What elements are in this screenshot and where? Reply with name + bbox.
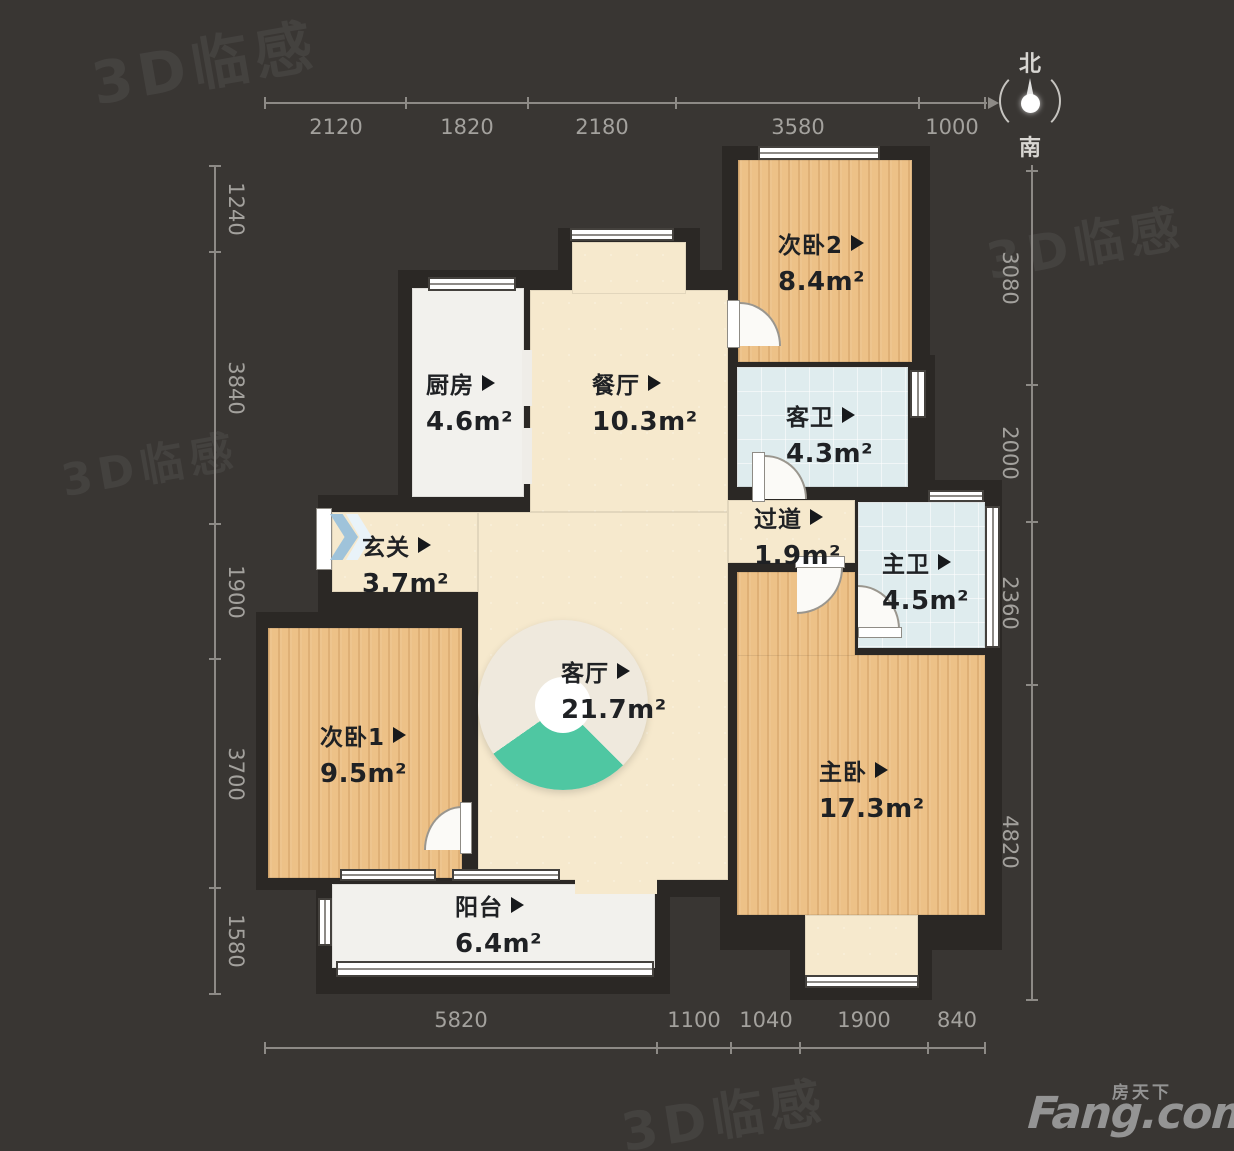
room-label-dining[interactable]: 餐厅 10.3m²: [592, 366, 698, 437]
room-label-corridor[interactable]: 过道 1.9m²: [754, 500, 841, 571]
dim-value: 3700: [224, 747, 248, 800]
watermark-text: 3D临感: [615, 1059, 832, 1151]
room-arrow-icon: [617, 663, 630, 679]
room-area: 6.4m²: [455, 929, 542, 959]
dim-value: 2360: [998, 576, 1022, 629]
floor-master-bay: [805, 915, 918, 977]
room-arrow-icon: [393, 727, 406, 743]
window-balcony-side: [318, 898, 332, 946]
dim-value: 1900: [837, 1008, 890, 1032]
room-name: 客卫: [786, 398, 834, 432]
window-guest-bath: [910, 370, 926, 418]
dim-tick: [918, 97, 920, 109]
dim-value: 2180: [575, 115, 628, 139]
door-bedroom1: [460, 802, 472, 854]
floor-dining-bay: [572, 242, 686, 294]
dim-value: 3840: [224, 361, 248, 414]
dim-tick: [984, 97, 986, 109]
window-dining-bay: [570, 228, 674, 241]
room-name: 次卧2: [778, 226, 843, 260]
room-area: 1.9m²: [754, 541, 841, 571]
room-name: 玄关: [362, 528, 410, 562]
dim-value: 4820: [998, 815, 1022, 868]
door-bedroom2: [727, 300, 740, 348]
floor-plan-canvas: 3D临感 3D临感 3D临感 3D临感: [0, 0, 1234, 1151]
room-arrow-icon: [938, 554, 951, 570]
room-area: 3.7m²: [362, 569, 449, 599]
fang-logo-en: Fang.com: [1026, 1088, 1234, 1139]
door-master-bath: [858, 627, 902, 638]
dim-value: 1040: [739, 1008, 792, 1032]
room-area: 17.3m²: [819, 794, 925, 824]
room-label-bedroom1[interactable]: 次卧1 9.5m²: [320, 718, 407, 789]
dim-arrow-icon: [988, 97, 999, 109]
dim-tick: [209, 523, 221, 525]
room-arrow-icon: [875, 762, 888, 778]
dim-tick: [730, 1042, 732, 1054]
compass-south-label: 南: [1015, 130, 1045, 162]
room-label-entry[interactable]: 玄关 3.7m²: [362, 528, 449, 599]
dim-tick: [527, 97, 529, 109]
room-name: 主卧: [819, 753, 867, 787]
window-balcony-front: [336, 961, 654, 977]
room-area: 4.3m²: [786, 439, 873, 469]
window-kitchen: [428, 277, 516, 291]
room-area: 4.5m²: [882, 586, 969, 616]
room-arrow-icon: [851, 235, 864, 251]
dim-value: 2120: [309, 115, 362, 139]
dim-tick: [984, 1042, 986, 1054]
room-label-kitchen[interactable]: 厨房 4.6m²: [426, 366, 513, 437]
window-master-bath-top: [928, 490, 984, 502]
dim-tick: [209, 165, 221, 167]
kitchen-opening: [522, 350, 532, 406]
dim-tick: [209, 251, 221, 253]
room-name: 餐厅: [592, 366, 640, 400]
dim-tick: [1026, 999, 1038, 1001]
window-living-balcony: [452, 869, 560, 881]
room-name: 厨房: [426, 366, 474, 400]
dim-tick: [1026, 384, 1038, 386]
room-arrow-icon: [482, 375, 495, 391]
room-name: 客厅: [561, 654, 609, 688]
compass-dot-icon: [1021, 94, 1040, 113]
room-name: 主卫: [882, 545, 930, 579]
kitchen-opening: [522, 428, 532, 484]
dim-value: 1240: [224, 182, 248, 235]
room-arrow-icon: [810, 509, 823, 525]
room-label-balcony[interactable]: 阳台 6.4m²: [455, 888, 542, 959]
room-area: 4.6m²: [426, 407, 513, 437]
room-arrow-icon: [648, 375, 661, 391]
room-label-master-bath[interactable]: 主卫 4.5m²: [882, 545, 969, 616]
window-master-bay: [805, 975, 919, 988]
room-name: 过道: [754, 500, 802, 534]
room-area: 10.3m²: [592, 407, 698, 437]
dim-tick: [1026, 521, 1038, 523]
room-label-living[interactable]: 客厅 21.7m²: [561, 654, 667, 725]
dim-value: 1000: [925, 115, 978, 139]
dim-line-top: [265, 102, 987, 104]
dim-value: 3580: [771, 115, 824, 139]
room-area: 21.7m²: [561, 695, 667, 725]
dim-line-right: [1031, 165, 1033, 1000]
dim-tick: [209, 887, 221, 889]
dim-tick: [209, 658, 221, 660]
dim-value: 1820: [440, 115, 493, 139]
dim-tick: [264, 1042, 266, 1054]
dim-tick: [675, 97, 677, 109]
dim-value: 3080: [998, 251, 1022, 304]
room-label-guest-bath[interactable]: 客卫 4.3m²: [786, 398, 873, 469]
room-name: 阳台: [455, 888, 503, 922]
room-name: 次卧1: [320, 718, 385, 752]
dim-value: 1100: [667, 1008, 720, 1032]
dim-line-bottom: [265, 1047, 985, 1049]
dim-line-left: [214, 166, 216, 994]
dim-tick: [264, 97, 266, 109]
dim-tick: [209, 993, 221, 995]
window-bedroom2: [758, 146, 880, 160]
room-label-bedroom2[interactable]: 次卧2 8.4m²: [778, 226, 865, 297]
living-balcony-opening: [575, 868, 657, 894]
room-arrow-icon: [511, 897, 524, 913]
dim-value: 5820: [434, 1008, 487, 1032]
room-arrow-icon: [418, 537, 431, 553]
dim-value: 840: [937, 1008, 977, 1032]
window-bedroom1-balcony: [340, 869, 436, 881]
dim-value: 2000: [998, 426, 1022, 479]
fang-logo: 房天下 Fang.com: [1028, 1078, 1224, 1148]
dim-value: 1900: [224, 565, 248, 618]
door-guest-bath: [752, 452, 765, 502]
room-arrow-icon: [842, 407, 855, 423]
room-area: 9.5m²: [320, 759, 407, 789]
entry-door: [316, 508, 332, 570]
dim-tick: [1026, 684, 1038, 686]
room-label-master-bedroom[interactable]: 主卧 17.3m²: [819, 753, 925, 824]
dim-tick: [1026, 170, 1038, 172]
dim-tick: [405, 97, 407, 109]
dim-tick: [799, 1042, 801, 1054]
room-area: 8.4m²: [778, 267, 865, 297]
dim-tick: [927, 1042, 929, 1054]
dim-tick: [656, 1042, 658, 1054]
dim-value: 1580: [224, 914, 248, 967]
